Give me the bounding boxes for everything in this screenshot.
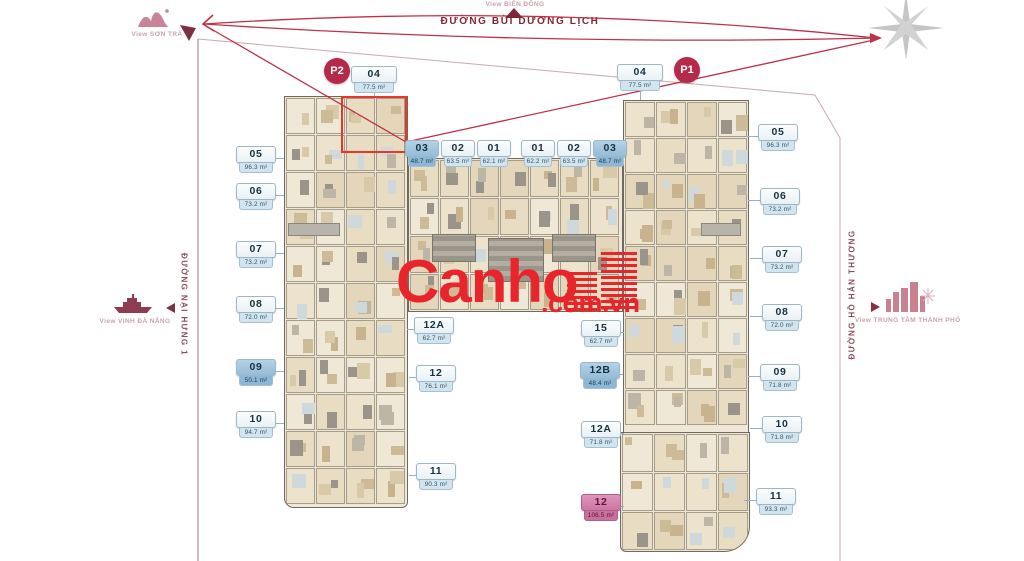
unit-number: 09 bbox=[760, 364, 800, 381]
ship-icon bbox=[114, 294, 152, 313]
label-connector bbox=[744, 500, 756, 501]
label-connector bbox=[748, 200, 760, 201]
unit-area: 93.3 m² bbox=[759, 505, 793, 515]
label-connector bbox=[276, 308, 284, 309]
unit-area: 71.8 m² bbox=[765, 433, 799, 443]
unit-label-left-inner-12A: 12A62.7 m² bbox=[414, 317, 454, 344]
unit-label-right-inner-12A: 12A71.8 m² bbox=[581, 421, 621, 448]
label-connector bbox=[621, 433, 624, 434]
unit-area: 72.0 m² bbox=[765, 321, 799, 331]
unit-area: 62.7 m² bbox=[584, 337, 618, 347]
unit-label-right-outer-08: 0872.0 m² bbox=[762, 304, 802, 331]
label-connector bbox=[620, 374, 623, 375]
unit-number: 08 bbox=[762, 304, 802, 321]
arrowhead-right-icon bbox=[870, 33, 882, 43]
unit-area: 77.5 m² bbox=[620, 81, 660, 91]
city-icon bbox=[886, 282, 935, 312]
unit-area: 71.8 m² bbox=[763, 381, 797, 391]
unit-label-inner-top-right-02: 0263.5 m² bbox=[557, 140, 591, 167]
unit-area: 72.0 m² bbox=[239, 313, 273, 323]
unit-number: 12B bbox=[580, 362, 620, 379]
unit-number: 12 bbox=[581, 494, 621, 511]
label-connector bbox=[409, 377, 416, 378]
annotation-layer bbox=[0, 0, 1024, 561]
unit-label-right-outer-06: 0673.2 m² bbox=[760, 188, 800, 215]
unit-label-top-right-04-04: 0477.5 m² bbox=[617, 64, 663, 91]
unit-label-left-outer-09: 0950.1 m² bbox=[236, 359, 276, 386]
label-connector bbox=[640, 90, 641, 100]
unit-area: 90.3 m² bbox=[419, 480, 453, 490]
unit-number: 08 bbox=[236, 296, 276, 313]
unit-area: 63.5 m² bbox=[444, 157, 472, 167]
tower-marker-p1: P1 bbox=[674, 57, 700, 83]
street-curve-lower bbox=[204, 24, 876, 40]
label-connector bbox=[276, 253, 284, 254]
unit-number: 03 bbox=[593, 140, 627, 157]
unit-number: 01 bbox=[521, 140, 555, 157]
unit-number: 05 bbox=[236, 146, 276, 163]
label-connector bbox=[276, 371, 284, 372]
unit-number: 07 bbox=[762, 246, 802, 263]
unit-area: 63.5 m² bbox=[560, 157, 588, 167]
unit-label-inner-top-right-03: 0348.7 m² bbox=[593, 140, 627, 167]
unit-area: 73.2 m² bbox=[763, 205, 797, 215]
unit-number: 03 bbox=[405, 140, 439, 157]
son-tra-arrow-icon bbox=[180, 25, 196, 41]
unit-number: 01 bbox=[477, 140, 511, 157]
unit-number: 12A bbox=[414, 317, 454, 334]
unit-number: 09 bbox=[236, 359, 276, 376]
unit-number: 12A bbox=[581, 421, 621, 438]
label-connector bbox=[621, 506, 624, 507]
label-connector bbox=[276, 195, 284, 196]
street-curve-upper bbox=[204, 16, 876, 38]
label-connector bbox=[621, 332, 624, 333]
unit-label-inner-top-left-03: 0348.7 m² bbox=[405, 140, 439, 167]
unit-label-left-outer-05: 0596.3 m² bbox=[236, 146, 276, 173]
unit-area: 48.7 m² bbox=[408, 157, 436, 167]
unit-label-right-outer-09: 0971.8 m² bbox=[760, 364, 800, 391]
unit-area: 48.4 m² bbox=[583, 379, 617, 389]
unit-area: 76.1 m² bbox=[419, 382, 453, 392]
unit-label-right-outer-07: 0773.2 m² bbox=[762, 246, 802, 273]
unit-label-inner-top-left-02: 0263.5 m² bbox=[441, 140, 475, 167]
unit-label-top-left-04-04: 0477.5 m² bbox=[351, 66, 397, 93]
unit-area: 62.1 m² bbox=[480, 157, 508, 167]
unit-area: 73.2 m² bbox=[239, 200, 273, 210]
unit-label-right-inner-12: 12106.5 m² bbox=[581, 494, 621, 521]
unit-label-right-outer-05: 0596.3 m² bbox=[758, 124, 798, 151]
unit-area: 48.7 m² bbox=[596, 157, 624, 167]
label-connector bbox=[750, 428, 762, 429]
unit-number: 15 bbox=[581, 320, 621, 337]
label-connector bbox=[407, 329, 414, 330]
unit-area: 106.5 m² bbox=[584, 511, 618, 521]
floorplan-page: View BIỂN ĐÔNG ĐƯỜNG BÙI DƯƠNG LỊCH View… bbox=[0, 0, 1024, 561]
unit-number: 10 bbox=[762, 416, 802, 433]
unit-number: 06 bbox=[760, 188, 800, 205]
north-sea-arrow-icon bbox=[505, 8, 523, 18]
label-connector bbox=[750, 316, 762, 317]
unit-label-right-inner-12B: 12B48.4 m² bbox=[580, 362, 620, 389]
mountain-icon bbox=[138, 9, 169, 27]
tower-marker-p2: P2 bbox=[324, 58, 350, 84]
unit-number: 05 bbox=[758, 124, 798, 141]
label-connector bbox=[276, 158, 284, 159]
label-connector bbox=[276, 423, 284, 424]
unit-number: 07 bbox=[236, 241, 276, 258]
unit-number: 11 bbox=[756, 488, 796, 505]
unit-area: 96.3 m² bbox=[239, 163, 273, 173]
unit-label-right-outer-10: 1071.8 m² bbox=[762, 416, 802, 443]
unit-label-left-outer-10: 1094.7 m² bbox=[236, 411, 276, 438]
unit-area: 77.5 m² bbox=[354, 83, 394, 93]
unit-label-left-outer-08: 0872.0 m² bbox=[236, 296, 276, 323]
unit-number: 02 bbox=[557, 140, 591, 157]
unit-label-right-inner-15: 1562.7 m² bbox=[581, 320, 621, 347]
compass-star-icon bbox=[868, 0, 944, 60]
unit-label-left-outer-07: 0773.2 m² bbox=[236, 241, 276, 268]
label-connector bbox=[746, 136, 758, 137]
right-street-arrow-icon bbox=[871, 302, 880, 312]
label-connector bbox=[750, 258, 762, 259]
unit-label-left-inner-11: 1190.3 m² bbox=[416, 463, 456, 490]
unit-label-inner-top-right-01: 0162.2 m² bbox=[521, 140, 555, 167]
label-connector bbox=[409, 475, 416, 476]
unit-number: 02 bbox=[441, 140, 475, 157]
unit-area: 94.7 m² bbox=[239, 428, 273, 438]
unit-area: 50.1 m² bbox=[239, 376, 273, 386]
unit-label-left-inner-12: 1276.1 m² bbox=[416, 365, 456, 392]
unit-area: 96.3 m² bbox=[761, 141, 795, 151]
unit-number: 10 bbox=[236, 411, 276, 428]
unit-area: 62.2 m² bbox=[524, 157, 552, 167]
unit-area: 73.2 m² bbox=[239, 258, 273, 268]
left-street-arrow-icon bbox=[166, 303, 175, 313]
unit-number: 11 bbox=[416, 463, 456, 480]
unit-number: 04 bbox=[351, 66, 397, 83]
unit-label-inner-top-left-01: 0162.1 m² bbox=[477, 140, 511, 167]
unit-number: 06 bbox=[236, 183, 276, 200]
label-connector bbox=[748, 376, 760, 377]
unit-label-left-outer-06: 0673.2 m² bbox=[236, 183, 276, 210]
unit-number: 04 bbox=[617, 64, 663, 81]
unit-area: 71.8 m² bbox=[584, 438, 618, 448]
unit-label-right-outer-11: 1193.3 m² bbox=[756, 488, 796, 515]
unit-area: 73.2 m² bbox=[765, 263, 799, 273]
unit-number: 12 bbox=[416, 365, 456, 382]
unit-area: 62.7 m² bbox=[417, 334, 451, 344]
